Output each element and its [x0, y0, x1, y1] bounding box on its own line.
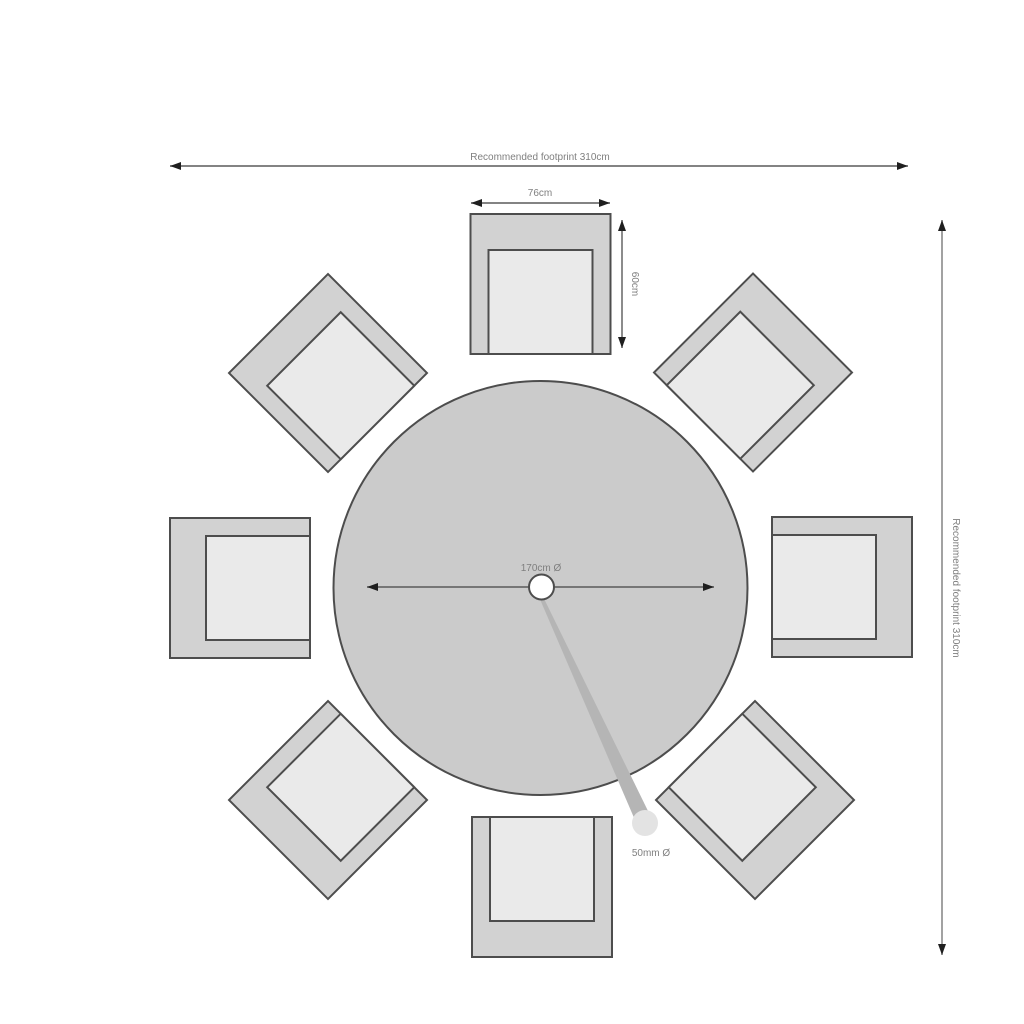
chair-left: [170, 518, 310, 658]
table-diameter-label: 170cm Ø: [521, 563, 562, 574]
chair-top: [471, 214, 611, 354]
parasol-hole-label: 50mm Ø: [632, 848, 671, 859]
chair-right: [772, 517, 912, 657]
chair-width-label: 76cm: [528, 188, 552, 199]
furniture-diagram: Recommended footprint 310cm Recommended …: [0, 0, 1024, 1024]
chair-depth-label: 60cm: [629, 272, 640, 296]
parasol-hole: [529, 575, 554, 600]
parasol-hole-callout-dot: [632, 810, 658, 836]
footprint-width-label: Recommended footprint 310cm: [470, 152, 610, 163]
footprint-height-label: Recommended footprint 310cm: [950, 518, 961, 658]
chair-bottom: [472, 817, 612, 957]
diagram-canvas: Recommended footprint 310cm Recommended …: [0, 0, 1024, 1024]
